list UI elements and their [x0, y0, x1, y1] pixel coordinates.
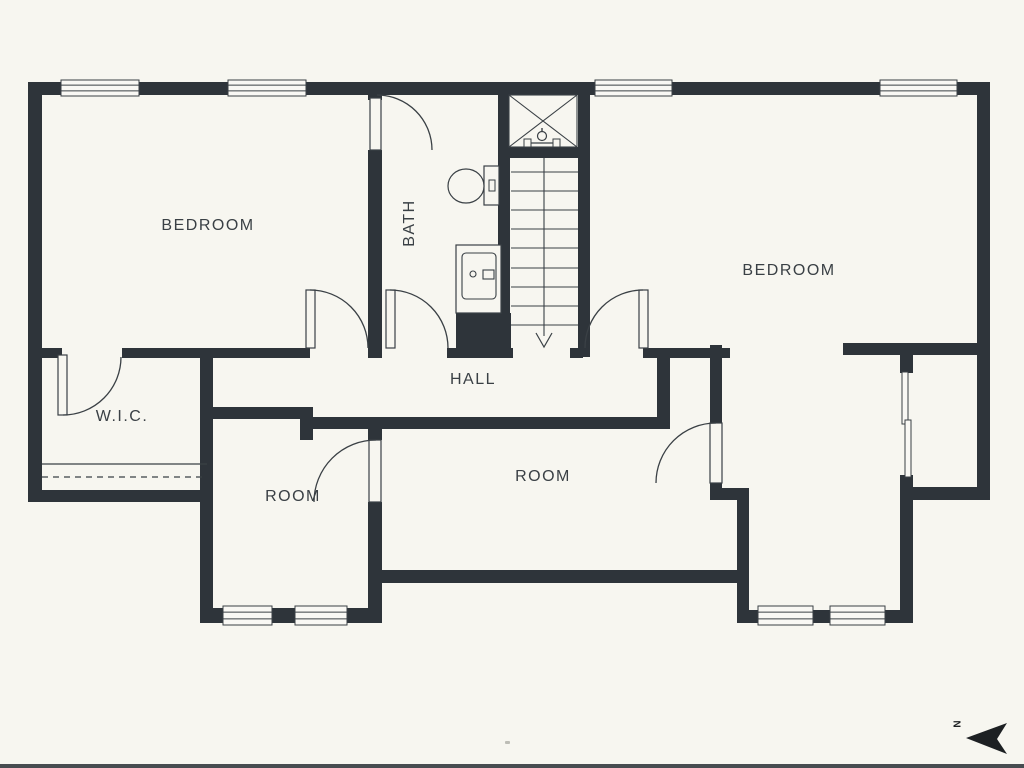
wall — [900, 500, 913, 623]
wall — [368, 150, 382, 358]
wall — [977, 82, 990, 500]
door-leaf — [370, 98, 381, 150]
door-leaf — [386, 290, 395, 348]
wall — [28, 82, 42, 502]
door-swing-arc — [585, 290, 643, 348]
wall — [213, 407, 313, 419]
wall — [122, 348, 310, 358]
wall — [903, 487, 990, 500]
wall — [900, 343, 913, 373]
wall — [456, 313, 513, 357]
wall — [28, 490, 213, 502]
wall — [368, 570, 748, 583]
door-leaf — [58, 355, 67, 415]
sink-drain — [470, 271, 476, 277]
window — [228, 80, 306, 96]
door-swing-arc — [390, 290, 448, 348]
shower-head-icon — [538, 132, 547, 141]
sliding-door-panel — [902, 372, 908, 424]
wall — [737, 488, 749, 610]
north-arrow-icon — [966, 723, 1007, 754]
wall — [843, 343, 990, 355]
bottom-border — [0, 764, 1024, 768]
door-swing-arc — [377, 95, 432, 150]
window — [223, 606, 272, 625]
wall — [657, 348, 670, 429]
window — [595, 80, 672, 96]
window — [880, 80, 957, 96]
sliding-door-panel — [905, 420, 911, 477]
door-leaf — [710, 423, 722, 483]
shower-valve-handle — [553, 139, 560, 147]
window — [830, 606, 885, 625]
door-swing-arc — [310, 290, 368, 348]
wall — [368, 502, 382, 623]
door-swing-arc — [656, 423, 716, 483]
page-dot — [505, 741, 510, 744]
wall — [900, 475, 913, 500]
floor-plan: BEDROOMBATHBEDROOMW.I.C.HALLROOMROOMN — [0, 0, 1024, 768]
wall — [300, 417, 670, 429]
wall — [200, 348, 213, 623]
door-leaf — [306, 290, 315, 348]
shower-valve-handle — [524, 139, 531, 147]
sink-faucet — [483, 270, 494, 279]
window — [295, 606, 347, 625]
door-leaf — [639, 290, 648, 348]
wall — [710, 345, 722, 423]
window — [758, 606, 813, 625]
door-leaf — [369, 440, 381, 502]
door-swing-arc — [63, 357, 121, 415]
toilet-bowl — [448, 169, 484, 203]
window — [61, 80, 139, 96]
door-swing-arc — [314, 440, 376, 502]
toilet-flush-button — [489, 180, 495, 191]
wall — [368, 427, 382, 440]
floor-plan-svg — [0, 0, 1024, 768]
wall — [578, 95, 590, 357]
wall — [498, 147, 590, 158]
